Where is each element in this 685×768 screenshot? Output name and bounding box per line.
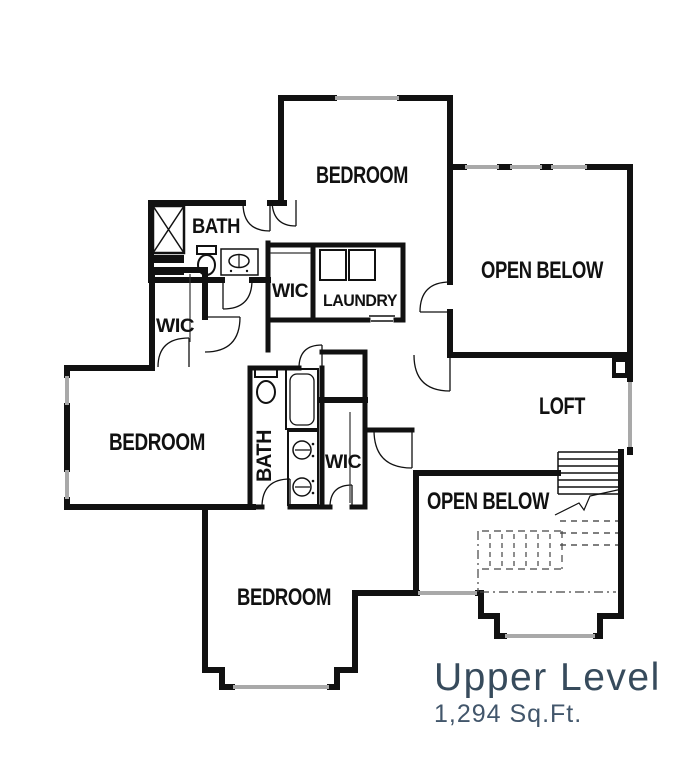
- label-bath-top: BATH: [192, 215, 240, 238]
- floor-plan-page: BEDROOM OPEN BELOW LOFT OPEN BELOW BEDRO…: [0, 0, 685, 768]
- label-laundry: LAUNDRY: [323, 291, 398, 310]
- label-open-below-top: OPEN BELOW: [481, 257, 604, 284]
- label-bedroom-bottom: BEDROOM: [237, 584, 331, 611]
- linen-shelves-fixture: [151, 255, 184, 275]
- door-bath-top-hall: [223, 280, 252, 309]
- plan-level-title: Upper Level: [434, 656, 661, 699]
- door-bath-top: [243, 203, 270, 231]
- washer-dryer-fixture: [320, 250, 375, 280]
- door-bedroom-top: [420, 282, 450, 312]
- lower-level-dashed-outlines: [478, 531, 616, 592]
- staircase: [555, 452, 622, 545]
- door-loft: [414, 355, 450, 391]
- door-bedroom-bottom: [374, 430, 412, 468]
- toilet-center-fixture: [255, 369, 277, 403]
- label-loft: LOFT: [539, 393, 586, 420]
- label-bedroom-left: BEDROOM: [109, 429, 205, 456]
- door-bath-center-south: [262, 479, 290, 507]
- vanity-sink-top-fixture: [221, 249, 258, 275]
- label-bath-center: BATH: [253, 430, 276, 482]
- shower-fixture: [153, 206, 184, 253]
- laundry-bifold-door: [369, 316, 395, 321]
- label-wic-top: WIC: [272, 281, 309, 302]
- door-bath-center: [299, 345, 322, 368]
- label-wic-center: WIC: [325, 452, 362, 473]
- double-vanity-fixture: [288, 431, 318, 505]
- door-bedroom-left: [205, 317, 240, 352]
- label-bedroom-top: BEDROOM: [316, 162, 408, 189]
- bathtub-fixture: [286, 369, 318, 429]
- plan-area-text: 1,294 Sq.Ft.: [434, 700, 582, 728]
- door-wic-left: [158, 338, 189, 367]
- label-wic-left: WIC: [156, 316, 195, 337]
- label-open-below-bottom: OPEN BELOW: [427, 488, 550, 515]
- door-wic-center: [330, 485, 352, 507]
- floor-plan-drawing: BEDROOM OPEN BELOW LOFT OPEN BELOW BEDRO…: [0, 0, 685, 768]
